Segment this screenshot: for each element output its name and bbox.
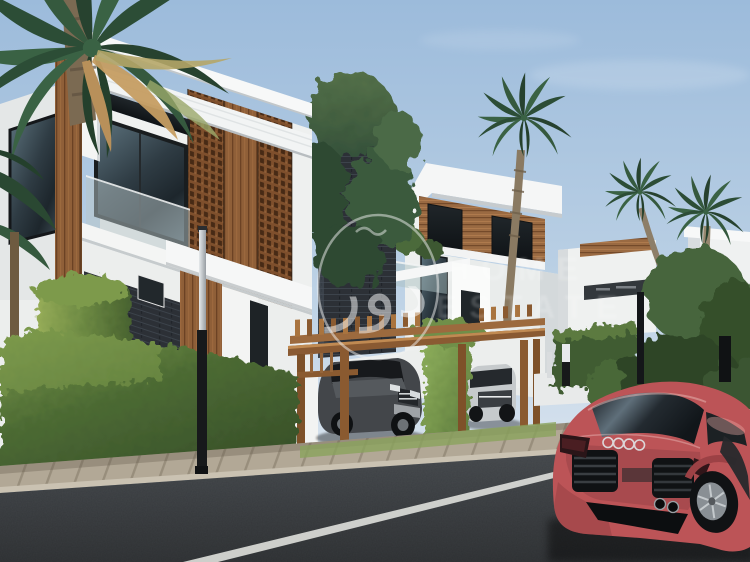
cloud <box>530 60 750 90</box>
cloud <box>420 30 580 50</box>
pole <box>637 292 644 384</box>
pergola-post <box>297 354 305 450</box>
post <box>547 352 552 378</box>
bollard <box>719 336 731 382</box>
wheel <box>469 406 483 422</box>
pergola-post <box>458 344 466 444</box>
license-plate-recess <box>622 468 652 482</box>
pergola-post <box>340 350 349 445</box>
watermark-line-1: HOME <box>446 251 590 287</box>
arabic-calligraphy-logo: دور <box>324 249 429 334</box>
tree-trunk <box>10 232 19 344</box>
lamp-bollard <box>562 344 570 364</box>
suv-silver <box>462 364 522 430</box>
watermark-line-2: ESTATE <box>436 289 629 325</box>
wheel <box>499 404 515 422</box>
pergola-post <box>520 340 528 430</box>
rear-vent-right <box>652 458 694 498</box>
architectural-render-image: دور HOME ESTATE <box>0 0 750 562</box>
